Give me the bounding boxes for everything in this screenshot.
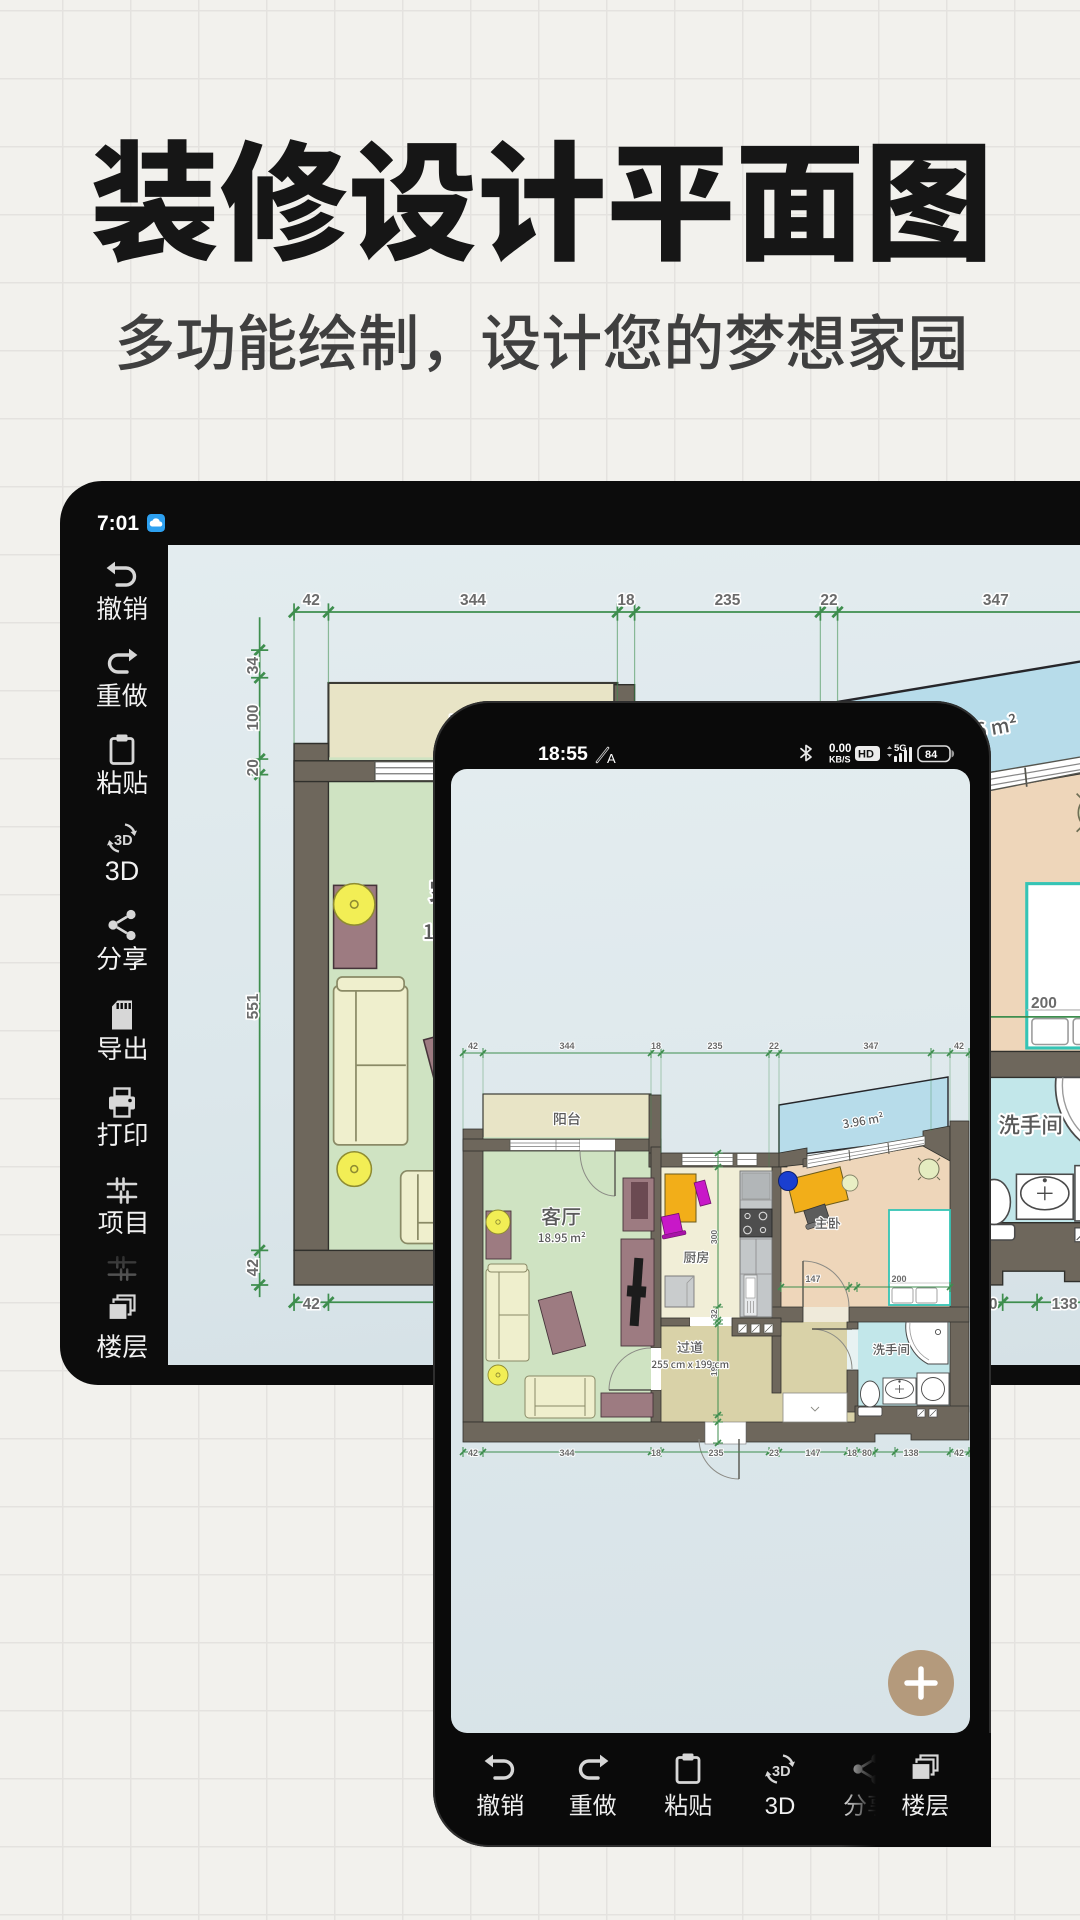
svg-text:KB/S: KB/S xyxy=(829,755,851,765)
svg-text:HD: HD xyxy=(858,749,874,761)
svg-text:3D: 3D xyxy=(105,856,140,886)
svg-text:A: A xyxy=(607,751,616,765)
svg-text:3D: 3D xyxy=(765,1793,796,1820)
svg-text:0.00: 0.00 xyxy=(829,743,851,755)
svg-text:84: 84 xyxy=(925,749,938,761)
